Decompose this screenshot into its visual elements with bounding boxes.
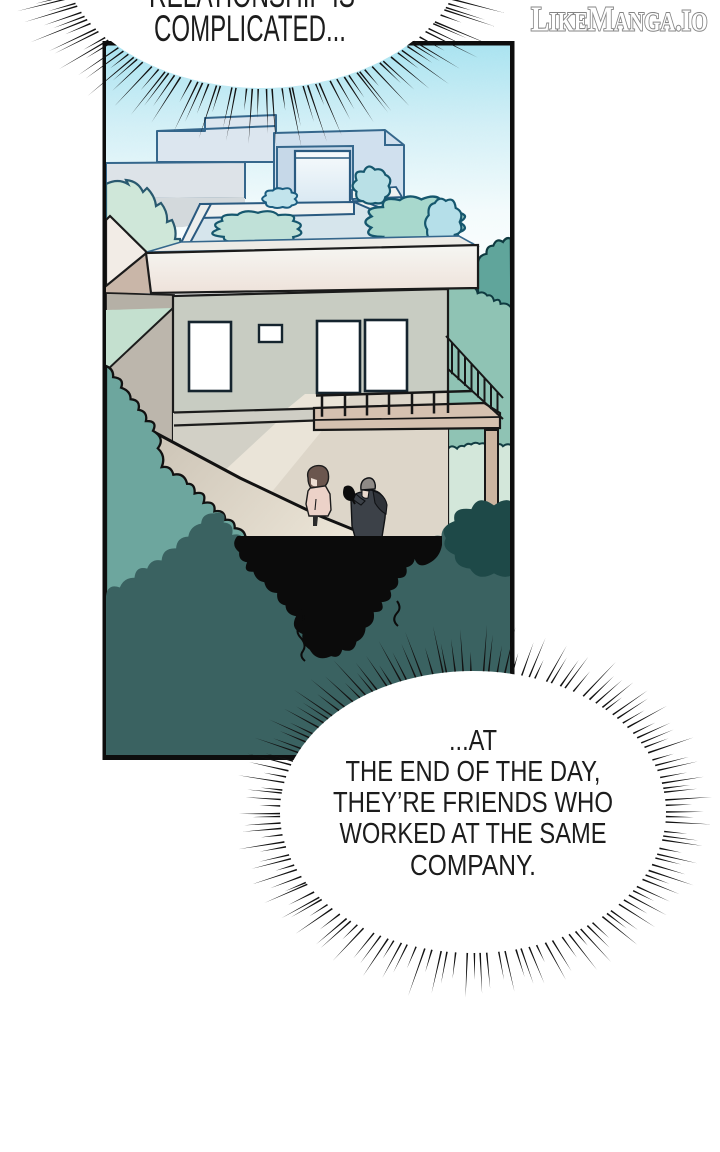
svg-text:COMPANY.: COMPANY.: [410, 850, 536, 882]
svg-text:THEY’RE FRIENDS WHO: THEY’RE FRIENDS WHO: [333, 787, 613, 819]
svg-text:THE END OF THE DAY,: THE END OF THE DAY,: [346, 756, 601, 788]
svg-text:COMPLICATED...: COMPLICATED...: [154, 8, 346, 49]
svg-text:WORKED AT THE SAME: WORKED AT THE SAME: [340, 818, 607, 850]
svg-text:...AT: ...AT: [449, 725, 497, 757]
